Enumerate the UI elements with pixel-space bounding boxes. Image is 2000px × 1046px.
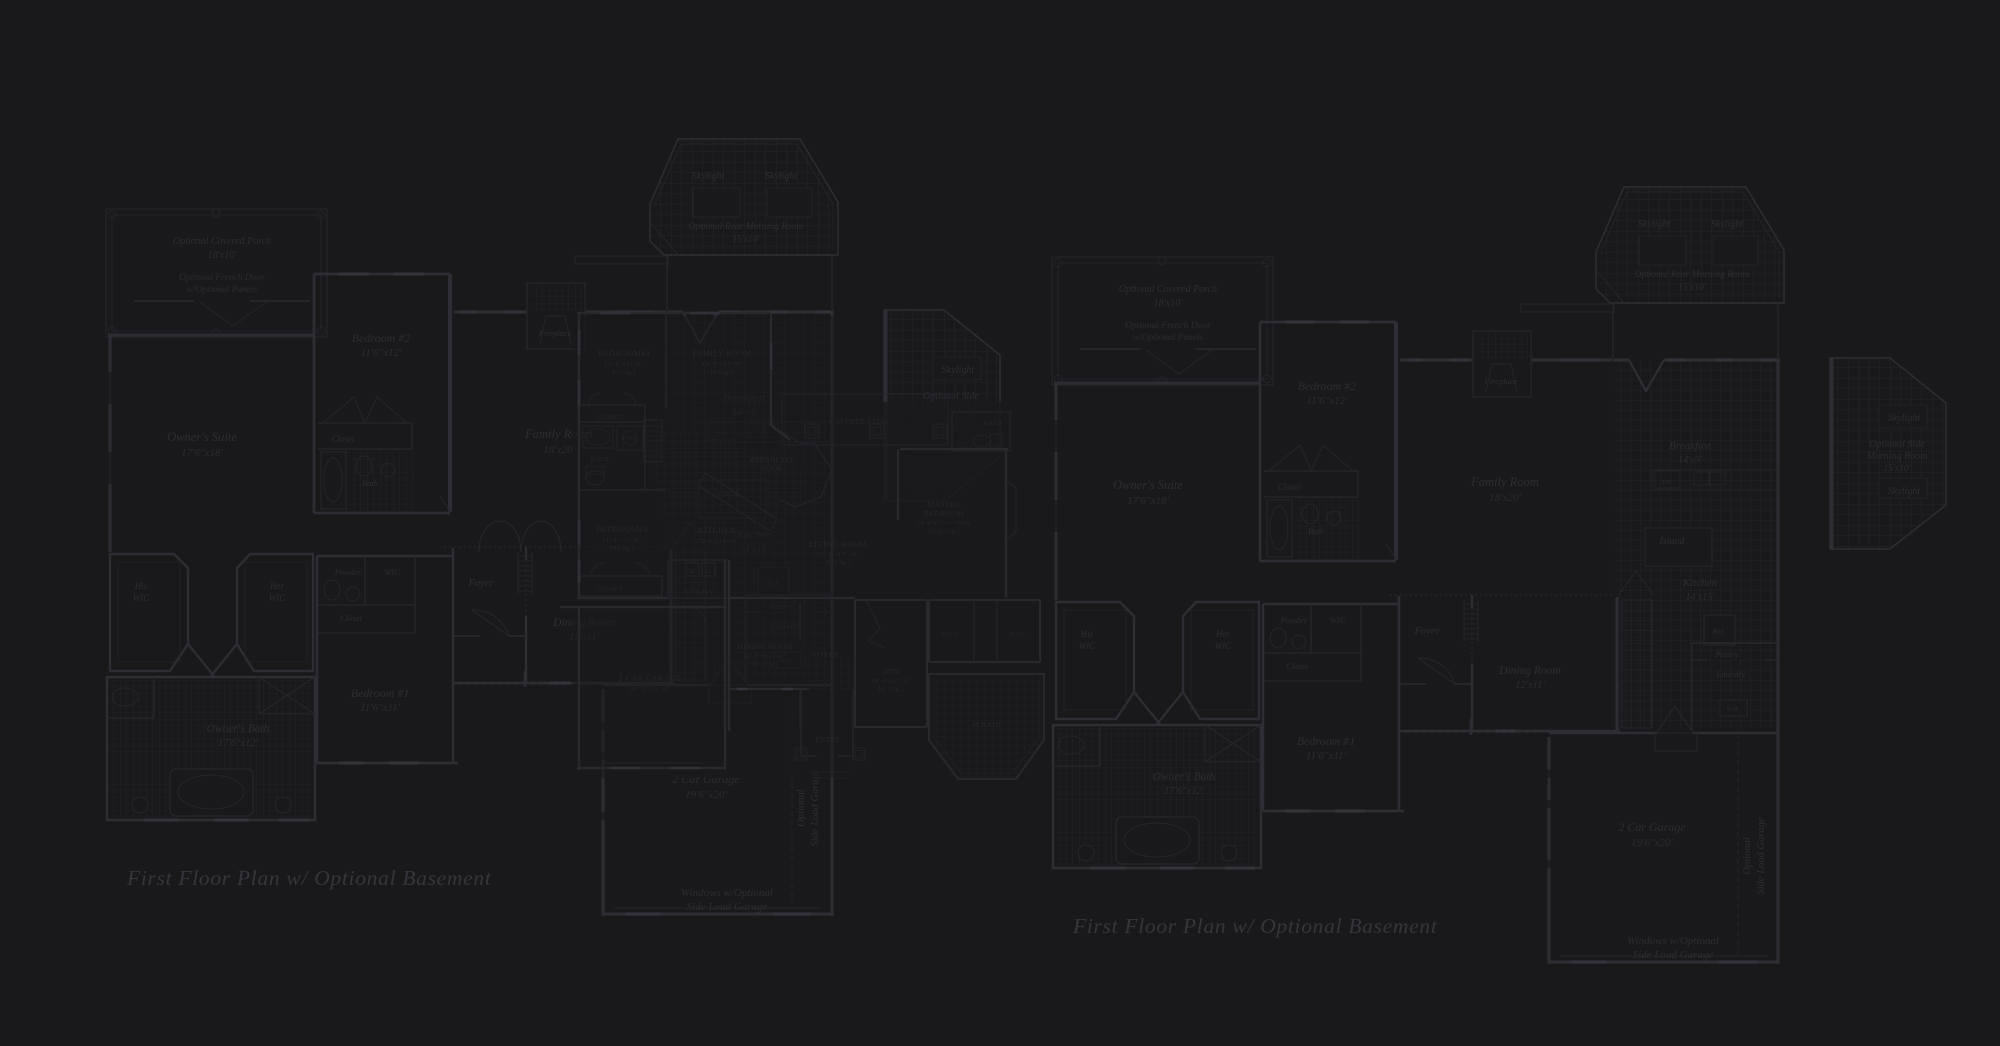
svg-text:FAMILY ROOM: FAMILY ROOM <box>692 349 751 358</box>
svg-text:BATH: BATH <box>984 420 1003 427</box>
svg-text:LIVING ROOM: LIVING ROOM <box>809 540 867 549</box>
svg-text:UTILITY: UTILITY <box>686 589 714 596</box>
svg-text:MASTER: MASTER <box>928 500 961 509</box>
svg-text:[Tray Clg.]: [Tray Clg.] <box>928 529 959 535</box>
svg-text:DINING ROOM: DINING ROOM <box>737 642 792 651</box>
svg-text:12'-0"x14'-0": 12'-0"x14'-0" <box>697 538 737 545</box>
svg-text:BEDROOM#4: BEDROOM#4 <box>596 525 648 534</box>
svg-text:W.I.C.: W.I.C. <box>1009 632 1027 638</box>
svg-text:BEDROOM: BEDROOM <box>924 509 964 518</box>
svg-text:W.I.C.: W.I.C. <box>942 632 960 638</box>
svg-text:14'-0"x17'-8": 14'-0"x17'-8" <box>702 361 742 368</box>
svg-text:M.BATH: M.BATH <box>973 721 1002 729</box>
svg-text:DEN: DEN <box>883 667 900 676</box>
svg-text:[9' Clg.]: [9' Clg.] <box>753 661 778 668</box>
svg-text:12'-4"x11'-0": 12'-4"x11'-0" <box>604 361 644 368</box>
svg-text:2 CAR GARAGE: 2 CAR GARAGE <box>619 674 682 683</box>
svg-text:ENTRY: ENTRY <box>816 736 841 744</box>
svg-text:[9'Clg.]: [9'Clg.] <box>711 369 734 376</box>
svg-text:20'-0"x21'-0": 20'-0"x21'-0" <box>630 686 670 693</box>
svg-text:D: D <box>706 569 710 575</box>
svg-text:DWN: DWN <box>623 436 637 442</box>
svg-text:NOOK: NOOK <box>761 465 783 473</box>
svg-text:FOYER: FOYER <box>813 650 840 659</box>
svg-text:W: W <box>689 569 695 575</box>
svg-text:CLOSET: CLOSET <box>597 587 622 593</box>
svg-text:BATH: BATH <box>591 456 610 463</box>
svg-text:[9' Clg.]: [9' Clg.] <box>879 686 904 693</box>
svg-text:10'-0"x11'-2": 10'-0"x11'-2" <box>871 678 911 685</box>
svg-text:13'-0"x17'-10": 13'-0"x17'-10" <box>816 551 860 558</box>
svg-text:12'-0"x12'-10": 12'-0"x12'-10" <box>743 653 787 660</box>
svg-text:KITCHEN: KITCHEN <box>698 526 736 535</box>
svg-text:[9'Clg.]: [9'Clg.] <box>611 545 634 552</box>
svg-text:14'-0"x17'-0"+BAY: 14'-0"x17'-0"+BAY <box>917 521 972 527</box>
svg-text:BREAKFAST: BREAKFAST <box>750 456 794 464</box>
svg-text:[9' Clg.]: [9' Clg.] <box>826 559 851 566</box>
svg-text:COVERED PATIO: COVERED PATIO <box>829 418 888 426</box>
svg-text:11'-4"x11'-0": 11'-4"x11'-0" <box>602 537 641 544</box>
svg-text:CLOSET: CLOSET <box>597 415 622 421</box>
svg-text:[9'Clg.]: [9'Clg.] <box>613 369 636 376</box>
svg-text:BEDROOM#3: BEDROOM#3 <box>598 349 650 358</box>
